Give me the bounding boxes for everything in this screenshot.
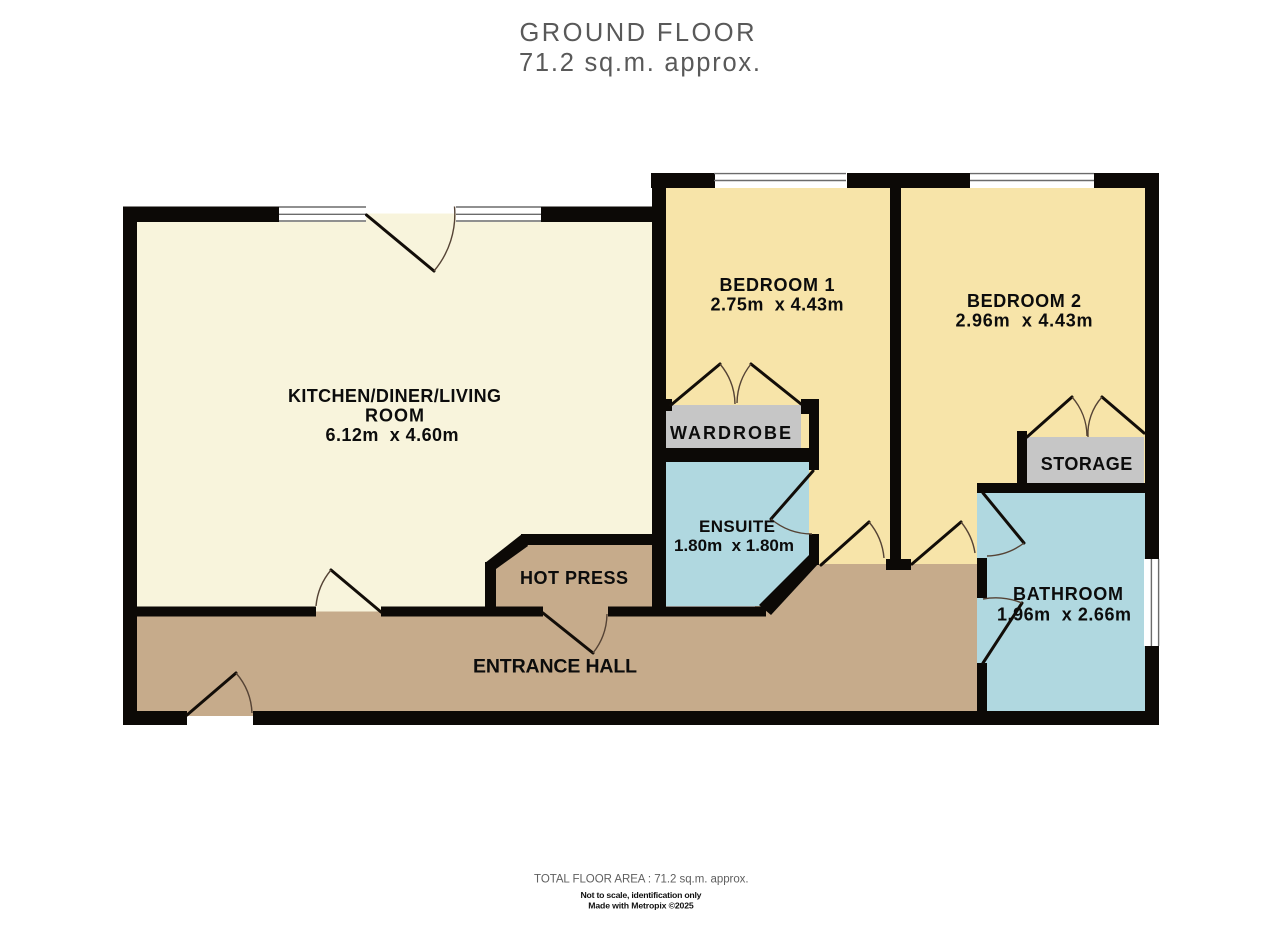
svg-text:WARDROBE: WARDROBE: [670, 423, 791, 443]
svg-text:GROUND FLOOR: GROUND FLOOR: [520, 19, 755, 47]
svg-text:Made with Metropix ©2025: Made with Metropix ©2025: [588, 901, 694, 911]
svg-text:6.12m x 4.60m: 6.12m x 4.60m: [326, 425, 459, 445]
svg-text:2.75m x 4.43m: 2.75m x 4.43m: [711, 295, 844, 315]
svg-text:71.2 sq.m. approx.: 71.2 sq.m. approx.: [519, 49, 760, 77]
svg-text:TOTAL FLOOR AREA : 71.2 sq.m.: TOTAL FLOOR AREA : 71.2 sq.m. approx.: [534, 873, 749, 885]
svg-text:STORAGE: STORAGE: [1041, 454, 1133, 474]
svg-text:KITCHEN/DINER/LIVING: KITCHEN/DINER/LIVING: [288, 386, 501, 406]
svg-text:BATHROOM: BATHROOM: [1013, 584, 1123, 604]
svg-text:HOT PRESS: HOT PRESS: [520, 568, 628, 588]
svg-text:Not to scale, identification o: Not to scale, identification only: [581, 890, 702, 900]
svg-text:ROOM: ROOM: [365, 406, 424, 426]
svg-text:ENSUITE: ENSUITE: [699, 517, 775, 536]
svg-text:1.80m x 1.80m: 1.80m x 1.80m: [674, 536, 794, 555]
svg-text:BEDROOM 2: BEDROOM 2: [967, 291, 1081, 311]
svg-text:1.96m x 2.66m: 1.96m x 2.66m: [997, 605, 1131, 625]
svg-text:ENTRANCE HALL: ENTRANCE HALL: [473, 656, 637, 678]
svg-text:2.96m x 4.43m: 2.96m x 4.43m: [956, 311, 1093, 331]
svg-text:BEDROOM 1: BEDROOM 1: [720, 275, 835, 295]
